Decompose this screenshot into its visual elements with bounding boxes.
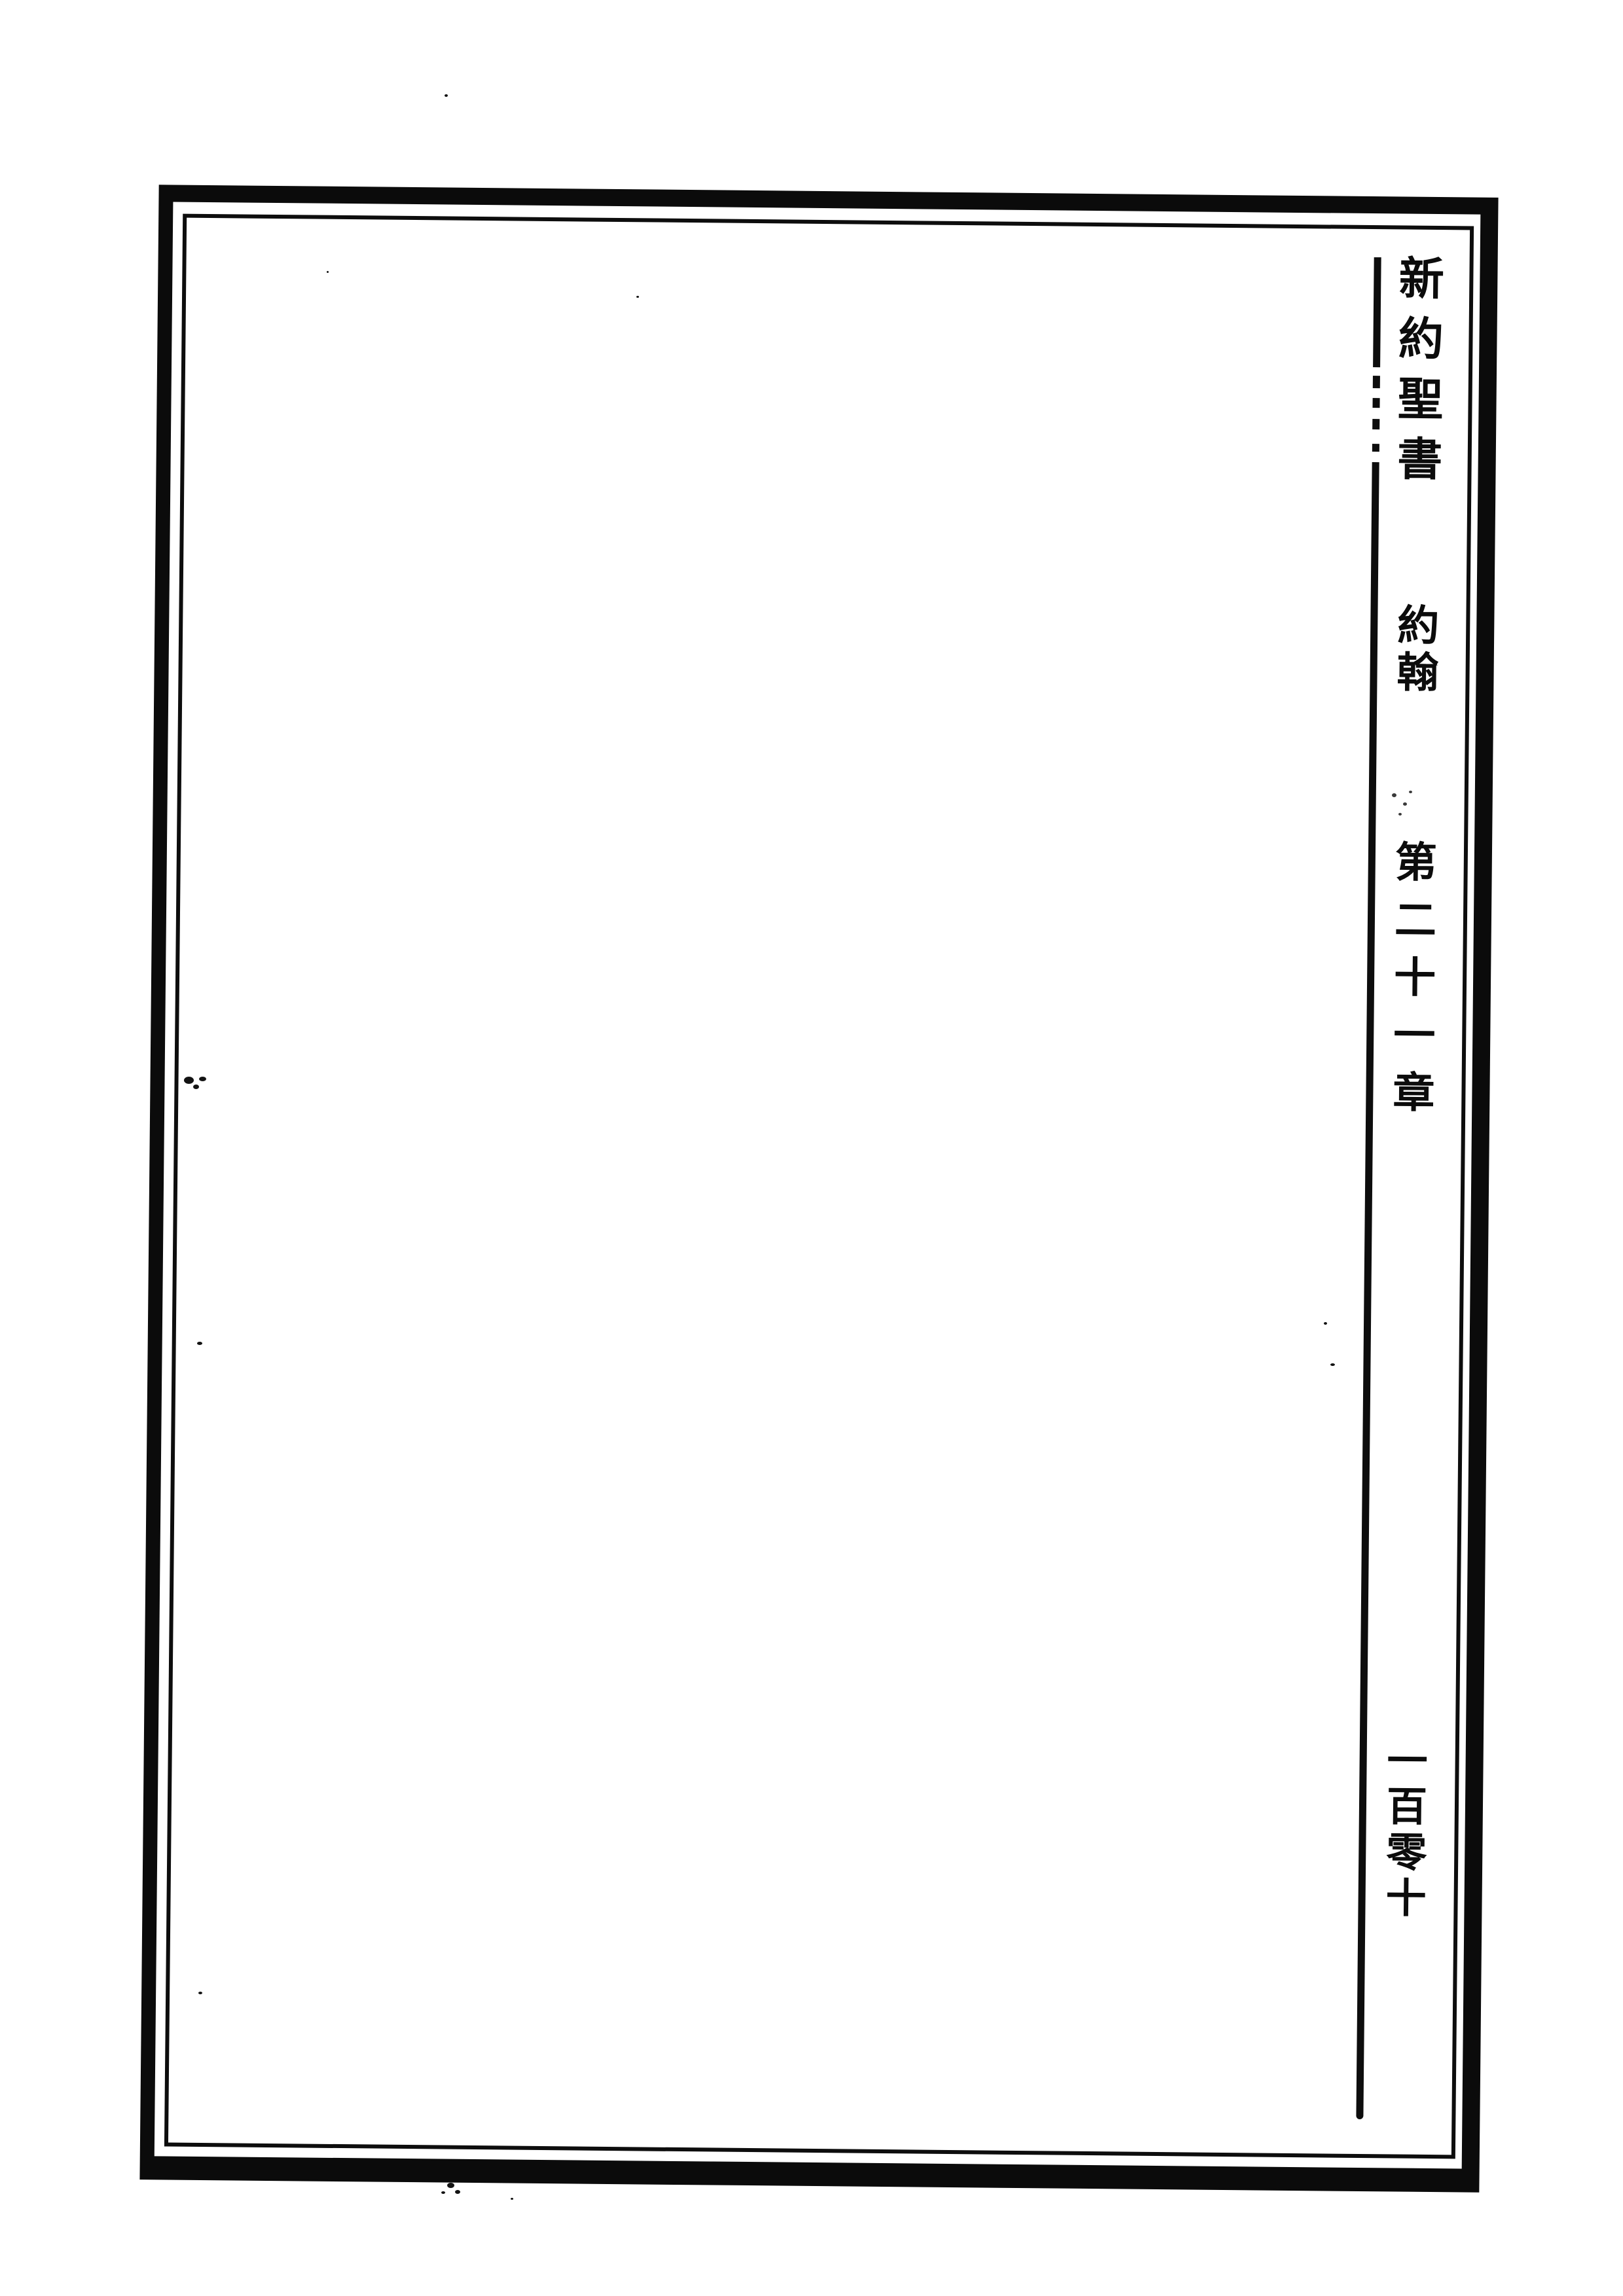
ink-speck (511, 2198, 513, 2200)
vertical-char: 十 (1385, 1876, 1427, 1922)
page-number-vertical: 一百零十 (1361, 1738, 1452, 1922)
vertical-char: 約 (1397, 602, 1440, 650)
ink-smudge (1398, 813, 1402, 816)
vertical-char: 章 (1393, 1064, 1435, 1122)
ink-speck (636, 296, 639, 298)
ink-speck (445, 94, 448, 97)
vertical-char: 一 (1387, 1738, 1428, 1785)
vertical-char: 一 (1393, 1007, 1436, 1065)
book-title-vertical: 新約聖書 (1375, 249, 1467, 490)
inner-border-rule (164, 214, 1474, 2159)
ink-speck (327, 271, 329, 273)
ink-speck (184, 1077, 194, 1084)
vertical-char: 百 (1387, 1784, 1428, 1831)
ink-speck (193, 1085, 199, 1089)
ink-speck (1330, 1363, 1335, 1366)
vertical-char: 新 (1398, 249, 1444, 310)
ink-speck (441, 2191, 445, 2194)
vertical-char: 二 (1395, 891, 1437, 950)
section-title-vertical: 約翰 (1373, 602, 1463, 697)
ink-smudge (1409, 791, 1412, 793)
chapter-heading-vertical: 第二十一章 (1369, 834, 1461, 1122)
scanned-page: 新約聖書 約翰 第二十一章 一百零十 (0, 0, 1623, 2296)
ink-speck (197, 1342, 202, 1345)
vertical-char: 翰 (1396, 649, 1439, 697)
ink-speck (455, 2190, 460, 2194)
ink-speck (199, 1077, 206, 1081)
ink-speck (1324, 1322, 1327, 1325)
ink-speck (198, 1992, 202, 1994)
page-frame: 新約聖書 約翰 第二十一章 一百零十 (139, 185, 1498, 2192)
vertical-char: 聖 (1398, 369, 1444, 430)
ink-smudge (1403, 802, 1407, 806)
vertical-char: 零 (1386, 1830, 1427, 1876)
ink-smudge (1392, 793, 1396, 797)
vertical-char: 約 (1398, 309, 1444, 370)
ink-speck (447, 2183, 454, 2188)
vertical-char: 書 (1397, 429, 1443, 490)
vertical-char: 第 (1395, 834, 1437, 892)
vertical-char: 十 (1394, 949, 1436, 1007)
